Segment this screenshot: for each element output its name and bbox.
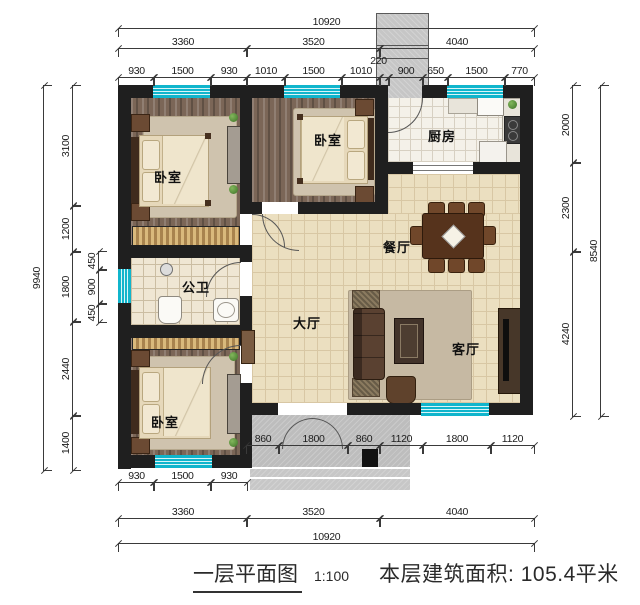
room-label-living-room: 客厅 [452,339,480,358]
bathroom-sink [158,296,182,324]
bed-post [297,178,303,184]
bed-post [297,114,303,120]
plant [508,100,517,109]
dining-chair [448,258,465,273]
room-label-bedroom-top-left: 卧室 [154,167,182,186]
window-bathroom [118,269,131,303]
dining-chair [482,226,496,245]
wall [210,85,284,98]
nightstand [355,186,374,203]
dimension-1500: 1500 [447,77,506,86]
bed-headboard [131,137,139,203]
porch-step [250,477,410,490]
dimension-3520: 3520 [246,48,381,57]
dimension-1200: 1200 [72,205,81,253]
dining-table [422,213,484,259]
nightstand [355,99,374,116]
table-centerpiece [441,224,465,248]
shower-head [160,263,173,276]
wall [489,403,533,415]
wall [118,455,155,468]
kitchen-pass-through [413,165,473,171]
dimension-4240: 4240 [572,251,581,417]
dimension-770: 770 [504,77,535,86]
floor-area-label: 本层建筑面积: 105.4平米 [379,558,619,588]
wardrobe [132,226,240,246]
wall [473,162,520,174]
dimension-450: 450 [98,303,107,323]
dimension-2000: 2000 [572,85,581,164]
dimension-9940: 9940 [43,85,52,471]
dimension-1500: 1500 [153,482,212,491]
wall [118,85,131,269]
dimension-10920: 10920 [118,543,535,552]
floor-plan-canvas: 一层平面图 1:100 本层建筑面积: 105.4平米 卧室卧室厨房公卫餐厅大厅… [0,0,640,605]
side-table [352,290,380,309]
window-bedroom-top-left [153,85,210,98]
plant [229,185,238,194]
side-table [352,378,380,397]
window-bedroom-top-middle [284,85,340,98]
bed-post [205,200,211,206]
dimension-3360: 3360 [118,518,248,527]
pillow [142,140,160,170]
room-label-bedroom-top-middle: 卧室 [314,130,342,149]
dimension-2440: 2440 [72,321,81,417]
dimension-1500: 1500 [284,77,343,86]
dimension-8540: 8540 [600,85,609,417]
dimension-860: 860 [246,445,280,454]
nightstand [131,437,150,454]
room-label-main-hall: 大厅 [293,313,321,332]
dimension-4040: 4040 [379,518,535,527]
window-living-room [421,403,489,416]
dimension-1010: 1010 [341,77,381,86]
tv-cabinet [498,308,522,394]
dimension-2300: 2300 [572,162,581,253]
coffee-table [394,318,424,364]
blanket [301,117,344,181]
bed-post [205,133,211,139]
toilet-bowl [217,302,235,318]
dimension-900: 900 [388,77,424,86]
plant [229,438,238,447]
room-label-dining-room: 餐厅 [383,237,411,256]
dimension-1120: 1120 [490,445,535,454]
tv [503,319,509,381]
room-label-bedroom-bottom-left: 卧室 [151,412,179,431]
dimension-1120: 1120 [379,445,424,454]
dimension-1800: 1800 [278,445,349,454]
dining-chair [468,258,485,273]
fridge [479,141,507,164]
dresser-mirror [227,126,241,184]
room-label-bathroom: 公卫 [182,277,210,296]
drawing-scale: 1:100 [314,568,349,584]
dimension-3100: 3100 [72,85,81,207]
hall-cabinet [241,330,255,364]
dimension-1800: 1800 [72,251,81,323]
pillow [142,372,160,402]
pillow [347,151,365,180]
dimension-1400: 1400 [72,415,81,471]
drawing-title: 一层平面图 [193,558,302,593]
dimension-1800: 1800 [422,445,492,454]
stove [504,116,521,144]
kitchen-sink [477,97,504,116]
toilet [213,298,239,322]
wall [388,162,413,174]
dimension-3520: 3520 [246,518,381,527]
window-kitchen [447,85,503,98]
flue-step-line [377,45,428,46]
burner [508,131,518,141]
bed [300,116,368,184]
window-bedroom-bottom-left [155,455,212,468]
coffee-table-tray [400,324,418,358]
dimension-930: 930 [210,482,248,491]
wall [118,325,252,338]
wall [422,85,447,98]
dimension-930: 930 [210,77,248,86]
caption: 一层平面图 1:100 本层建筑面积: 105.4平米 [193,558,619,593]
wall [240,383,252,468]
dining-chair [428,258,445,273]
armchair [386,376,416,404]
wall [520,85,533,415]
wall [118,245,252,258]
dimension-930: 930 [118,77,155,86]
dimension-4040: 4040 [379,48,535,57]
nightstand [131,350,150,367]
bed-headboard [131,370,139,434]
wall [347,403,421,415]
burner [508,120,518,130]
wall [252,202,262,214]
pillow [347,120,365,149]
sofa [353,308,385,380]
dimension-3360: 3360 [118,48,248,57]
dimension-860: 860 [347,445,381,454]
wall [340,85,388,98]
plant [229,113,238,122]
dimension-1500: 1500 [153,77,212,86]
wall [240,98,252,214]
room-label-kitchen: 厨房 [428,126,456,145]
dimension-1010: 1010 [246,77,286,86]
dimension-930: 930 [118,482,155,491]
wall [375,98,388,214]
nightstand [131,114,150,132]
